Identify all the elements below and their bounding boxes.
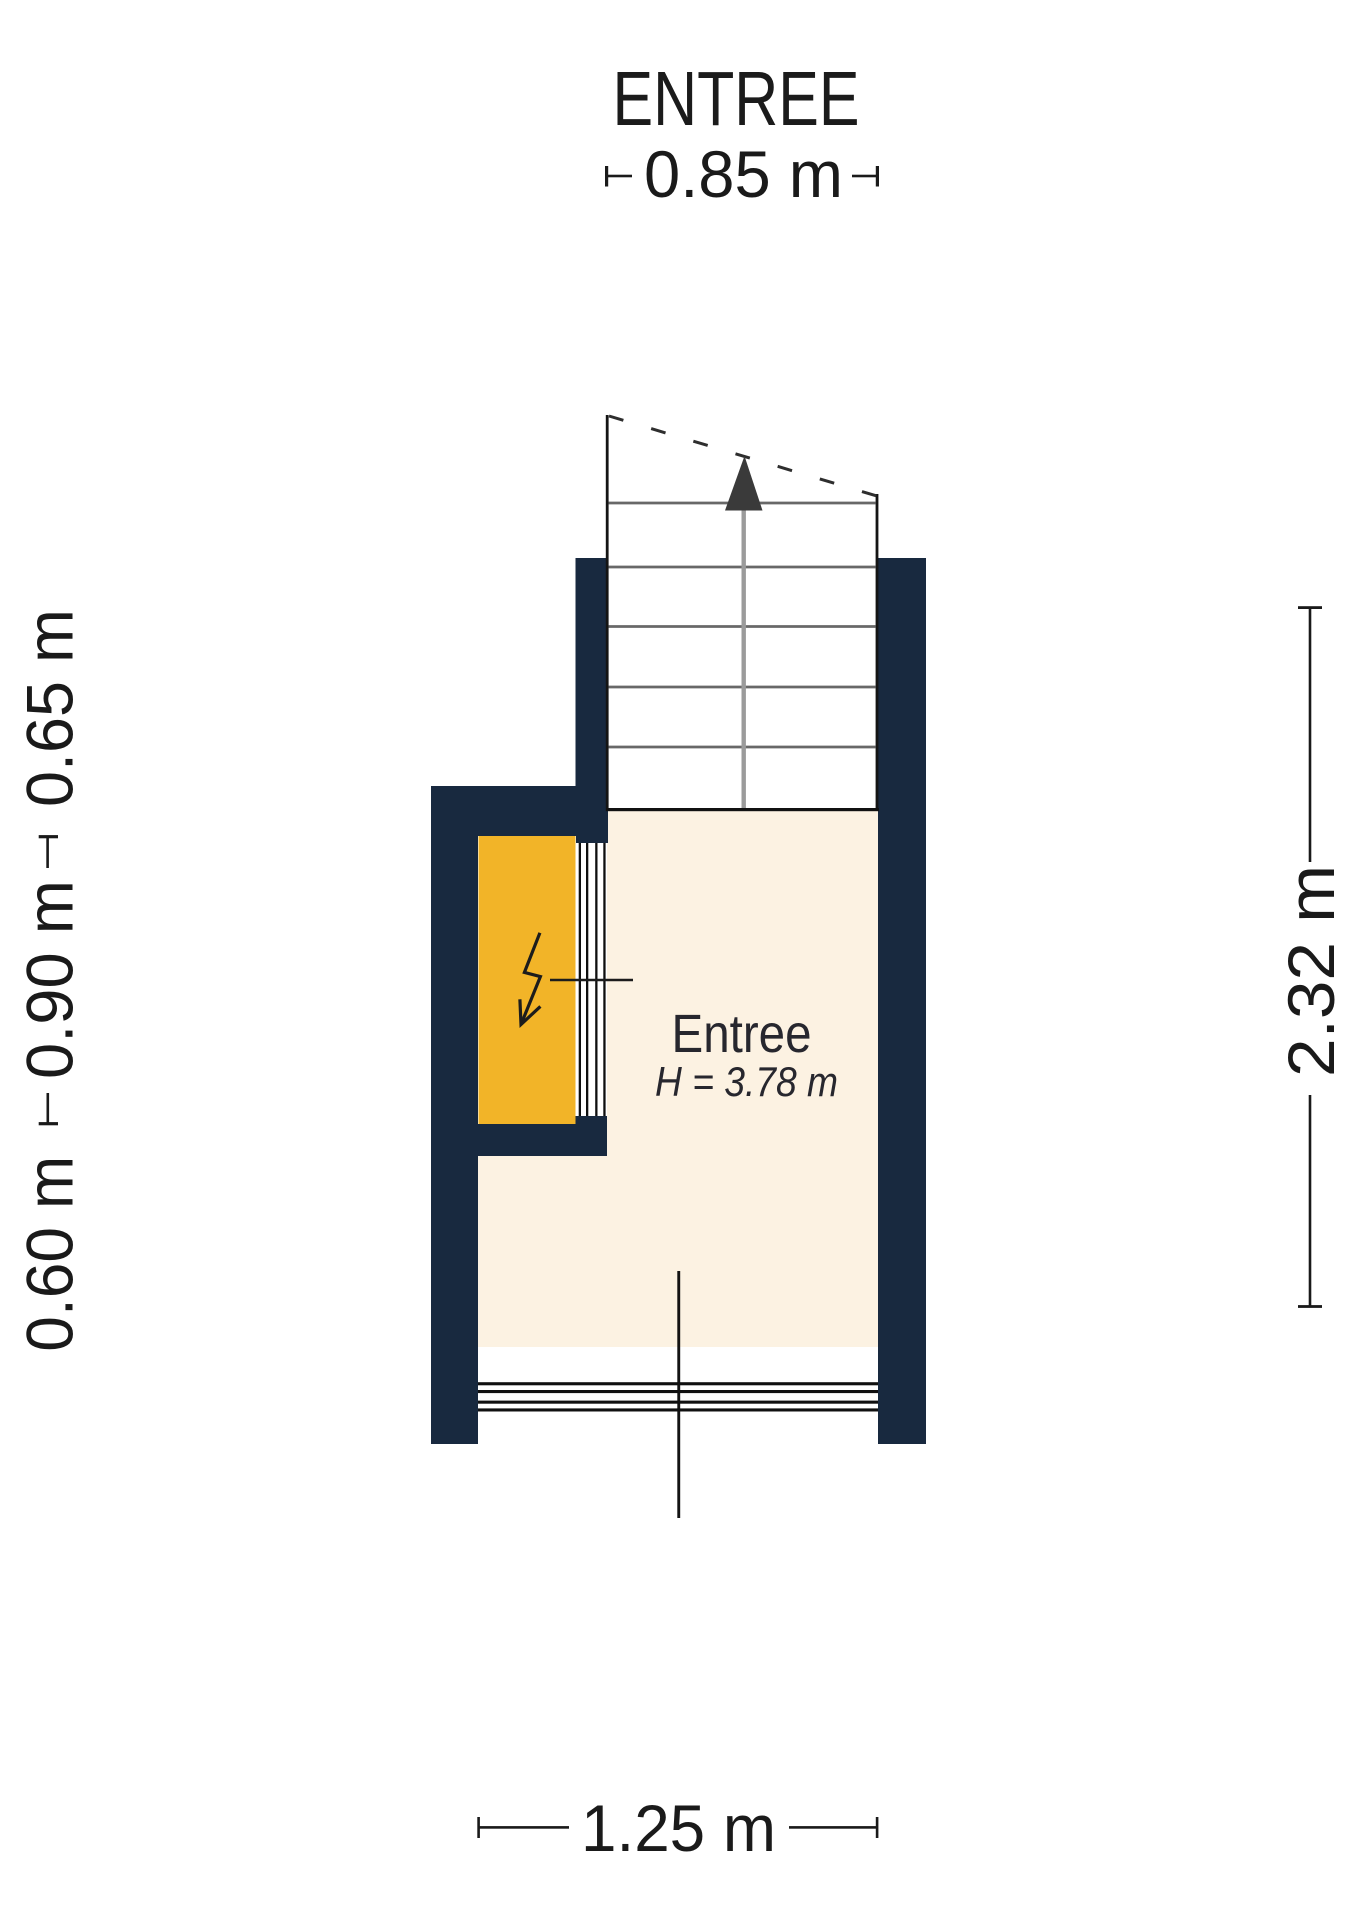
svg-text:0.85 m: 0.85 m — [644, 137, 843, 211]
svg-text:ENTREE: ENTREE — [613, 56, 860, 142]
svg-text:0.90 m: 0.90 m — [13, 880, 87, 1079]
svg-text:2.32 m: 2.32 m — [1274, 865, 1348, 1077]
svg-text:1.25 m: 1.25 m — [581, 1791, 776, 1865]
svg-text:0.60 m: 0.60 m — [13, 1156, 87, 1352]
svg-text:Entree: Entree — [672, 1004, 812, 1064]
svg-text:H = 3.78 m: H = 3.78 m — [655, 1058, 838, 1105]
svg-text:0.65 m: 0.65 m — [13, 609, 87, 807]
